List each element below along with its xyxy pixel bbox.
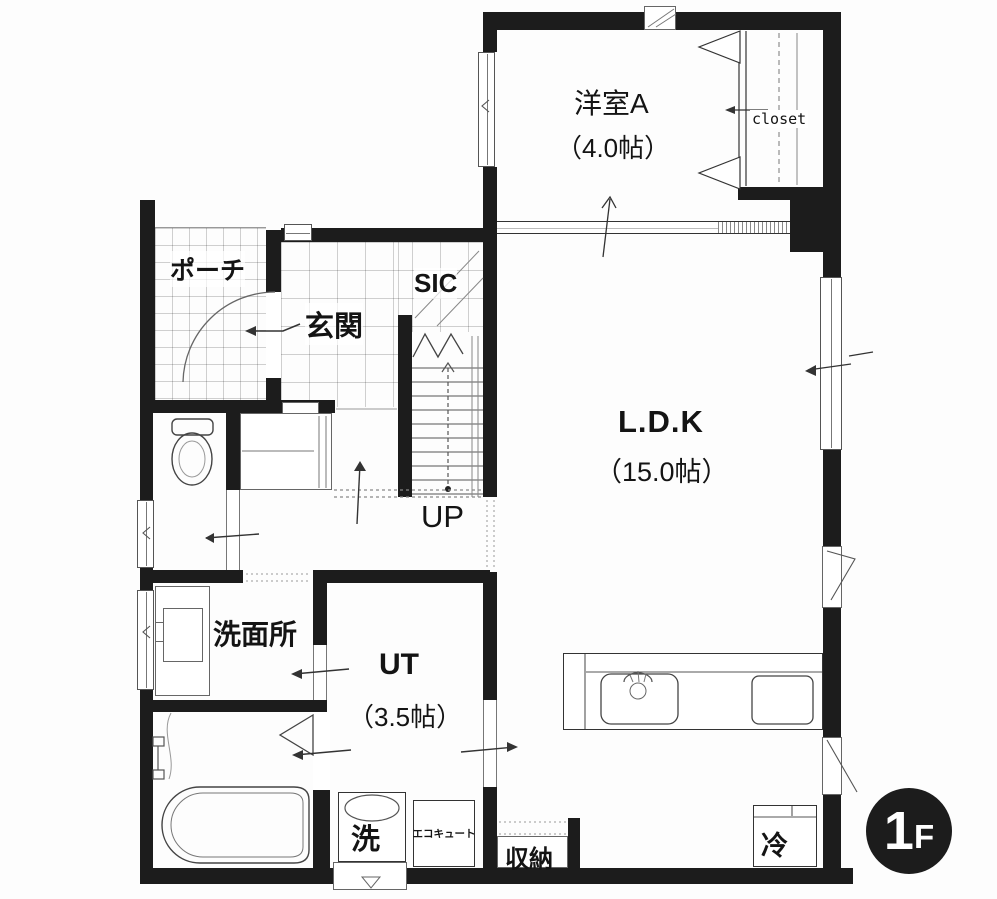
wall-segment bbox=[313, 570, 490, 583]
wall-segment bbox=[313, 790, 330, 868]
vanity-faucet bbox=[155, 622, 164, 642]
room-size-utility: （3.5帖） bbox=[348, 697, 462, 734]
stairs-up-label: UP bbox=[421, 499, 464, 535]
wall-segment bbox=[483, 572, 497, 700]
storage-label: 収納 bbox=[505, 839, 553, 874]
wall-segment bbox=[483, 12, 497, 52]
floor-badge-number: 1 bbox=[884, 804, 914, 858]
floor-plan: エコキュート bbox=[0, 0, 997, 899]
window-entrance bbox=[284, 224, 312, 241]
room-label-sic: SIC bbox=[414, 268, 457, 299]
door-ldk-east bbox=[822, 737, 842, 795]
ldk-opening-dotted bbox=[487, 500, 494, 567]
vent bbox=[644, 6, 676, 30]
wall-segment bbox=[483, 167, 497, 497]
kitchen-counter bbox=[563, 653, 823, 730]
sliding-door-track bbox=[718, 221, 790, 234]
wall-segment bbox=[140, 570, 243, 583]
room-label-western-a: 洋室A bbox=[574, 82, 649, 122]
window-ldk-east bbox=[820, 277, 842, 450]
window-western-a bbox=[478, 52, 495, 167]
wall-segment bbox=[266, 230, 281, 292]
room-size-western-a: （4.0帖） bbox=[556, 128, 670, 165]
ecocute-unit: エコキュート bbox=[413, 800, 475, 867]
casement-window-ldk bbox=[822, 546, 842, 608]
vanity-sink bbox=[163, 608, 203, 662]
storage-dotted bbox=[499, 822, 566, 834]
wall-segment bbox=[140, 712, 153, 884]
stairs bbox=[412, 334, 483, 497]
room-size-ldk: （15.0帖） bbox=[595, 450, 729, 489]
wall-segment bbox=[823, 30, 841, 277]
door-gap-ut-ldk bbox=[483, 700, 497, 787]
door-gap-entrance bbox=[266, 292, 281, 378]
room-label-entrance: 玄関 bbox=[305, 303, 363, 345]
wall-segment bbox=[823, 450, 841, 546]
bathtub bbox=[162, 787, 309, 863]
door-gap-bath bbox=[313, 712, 330, 790]
wall-segment bbox=[823, 608, 841, 737]
door-gap-washroom-ut bbox=[313, 645, 327, 700]
wall-segment bbox=[313, 583, 327, 645]
room-label-utility: UT bbox=[379, 648, 419, 682]
room-label-closet: closet bbox=[750, 110, 808, 128]
wall-segment bbox=[140, 413, 153, 500]
hall-door-arrow bbox=[354, 461, 366, 524]
door-gap-toilet bbox=[226, 490, 240, 570]
wall-segment bbox=[140, 700, 327, 712]
wall-segment bbox=[140, 200, 155, 413]
toilet-fixture bbox=[172, 419, 213, 485]
wall-segment bbox=[483, 787, 497, 868]
wall-segment bbox=[140, 868, 853, 884]
bath-faucet bbox=[153, 713, 171, 779]
wall-segment bbox=[738, 187, 823, 200]
room-label-washroom: 洗面所 bbox=[213, 613, 297, 653]
closet-door-triangles bbox=[699, 31, 740, 189]
room-label-porch: ポーチ bbox=[170, 251, 245, 287]
bath-door-fold bbox=[280, 715, 313, 755]
closet-door-lines bbox=[739, 31, 797, 186]
room-label-ldk: L.D.K bbox=[618, 404, 704, 440]
wall-segment bbox=[568, 818, 580, 868]
sliding-door-western-a bbox=[497, 221, 718, 234]
washer-drain-pan bbox=[333, 862, 407, 890]
wall-segment bbox=[398, 315, 412, 497]
entrance-tile-floor-strip bbox=[398, 242, 412, 315]
window-washroom bbox=[137, 590, 154, 690]
washer-label: 洗 bbox=[351, 816, 380, 858]
fridge-label: 冷 bbox=[761, 824, 788, 863]
ecocute-label: エコキュート bbox=[413, 826, 476, 841]
wall-segment bbox=[226, 413, 240, 490]
wall-segment bbox=[823, 795, 841, 884]
floor-badge-suffix: F bbox=[914, 820, 934, 853]
hall-cabinet bbox=[240, 413, 332, 490]
window-toilet bbox=[137, 500, 154, 568]
floor-badge: 1 F bbox=[866, 788, 952, 874]
washroom-opening-dotted bbox=[246, 574, 311, 581]
